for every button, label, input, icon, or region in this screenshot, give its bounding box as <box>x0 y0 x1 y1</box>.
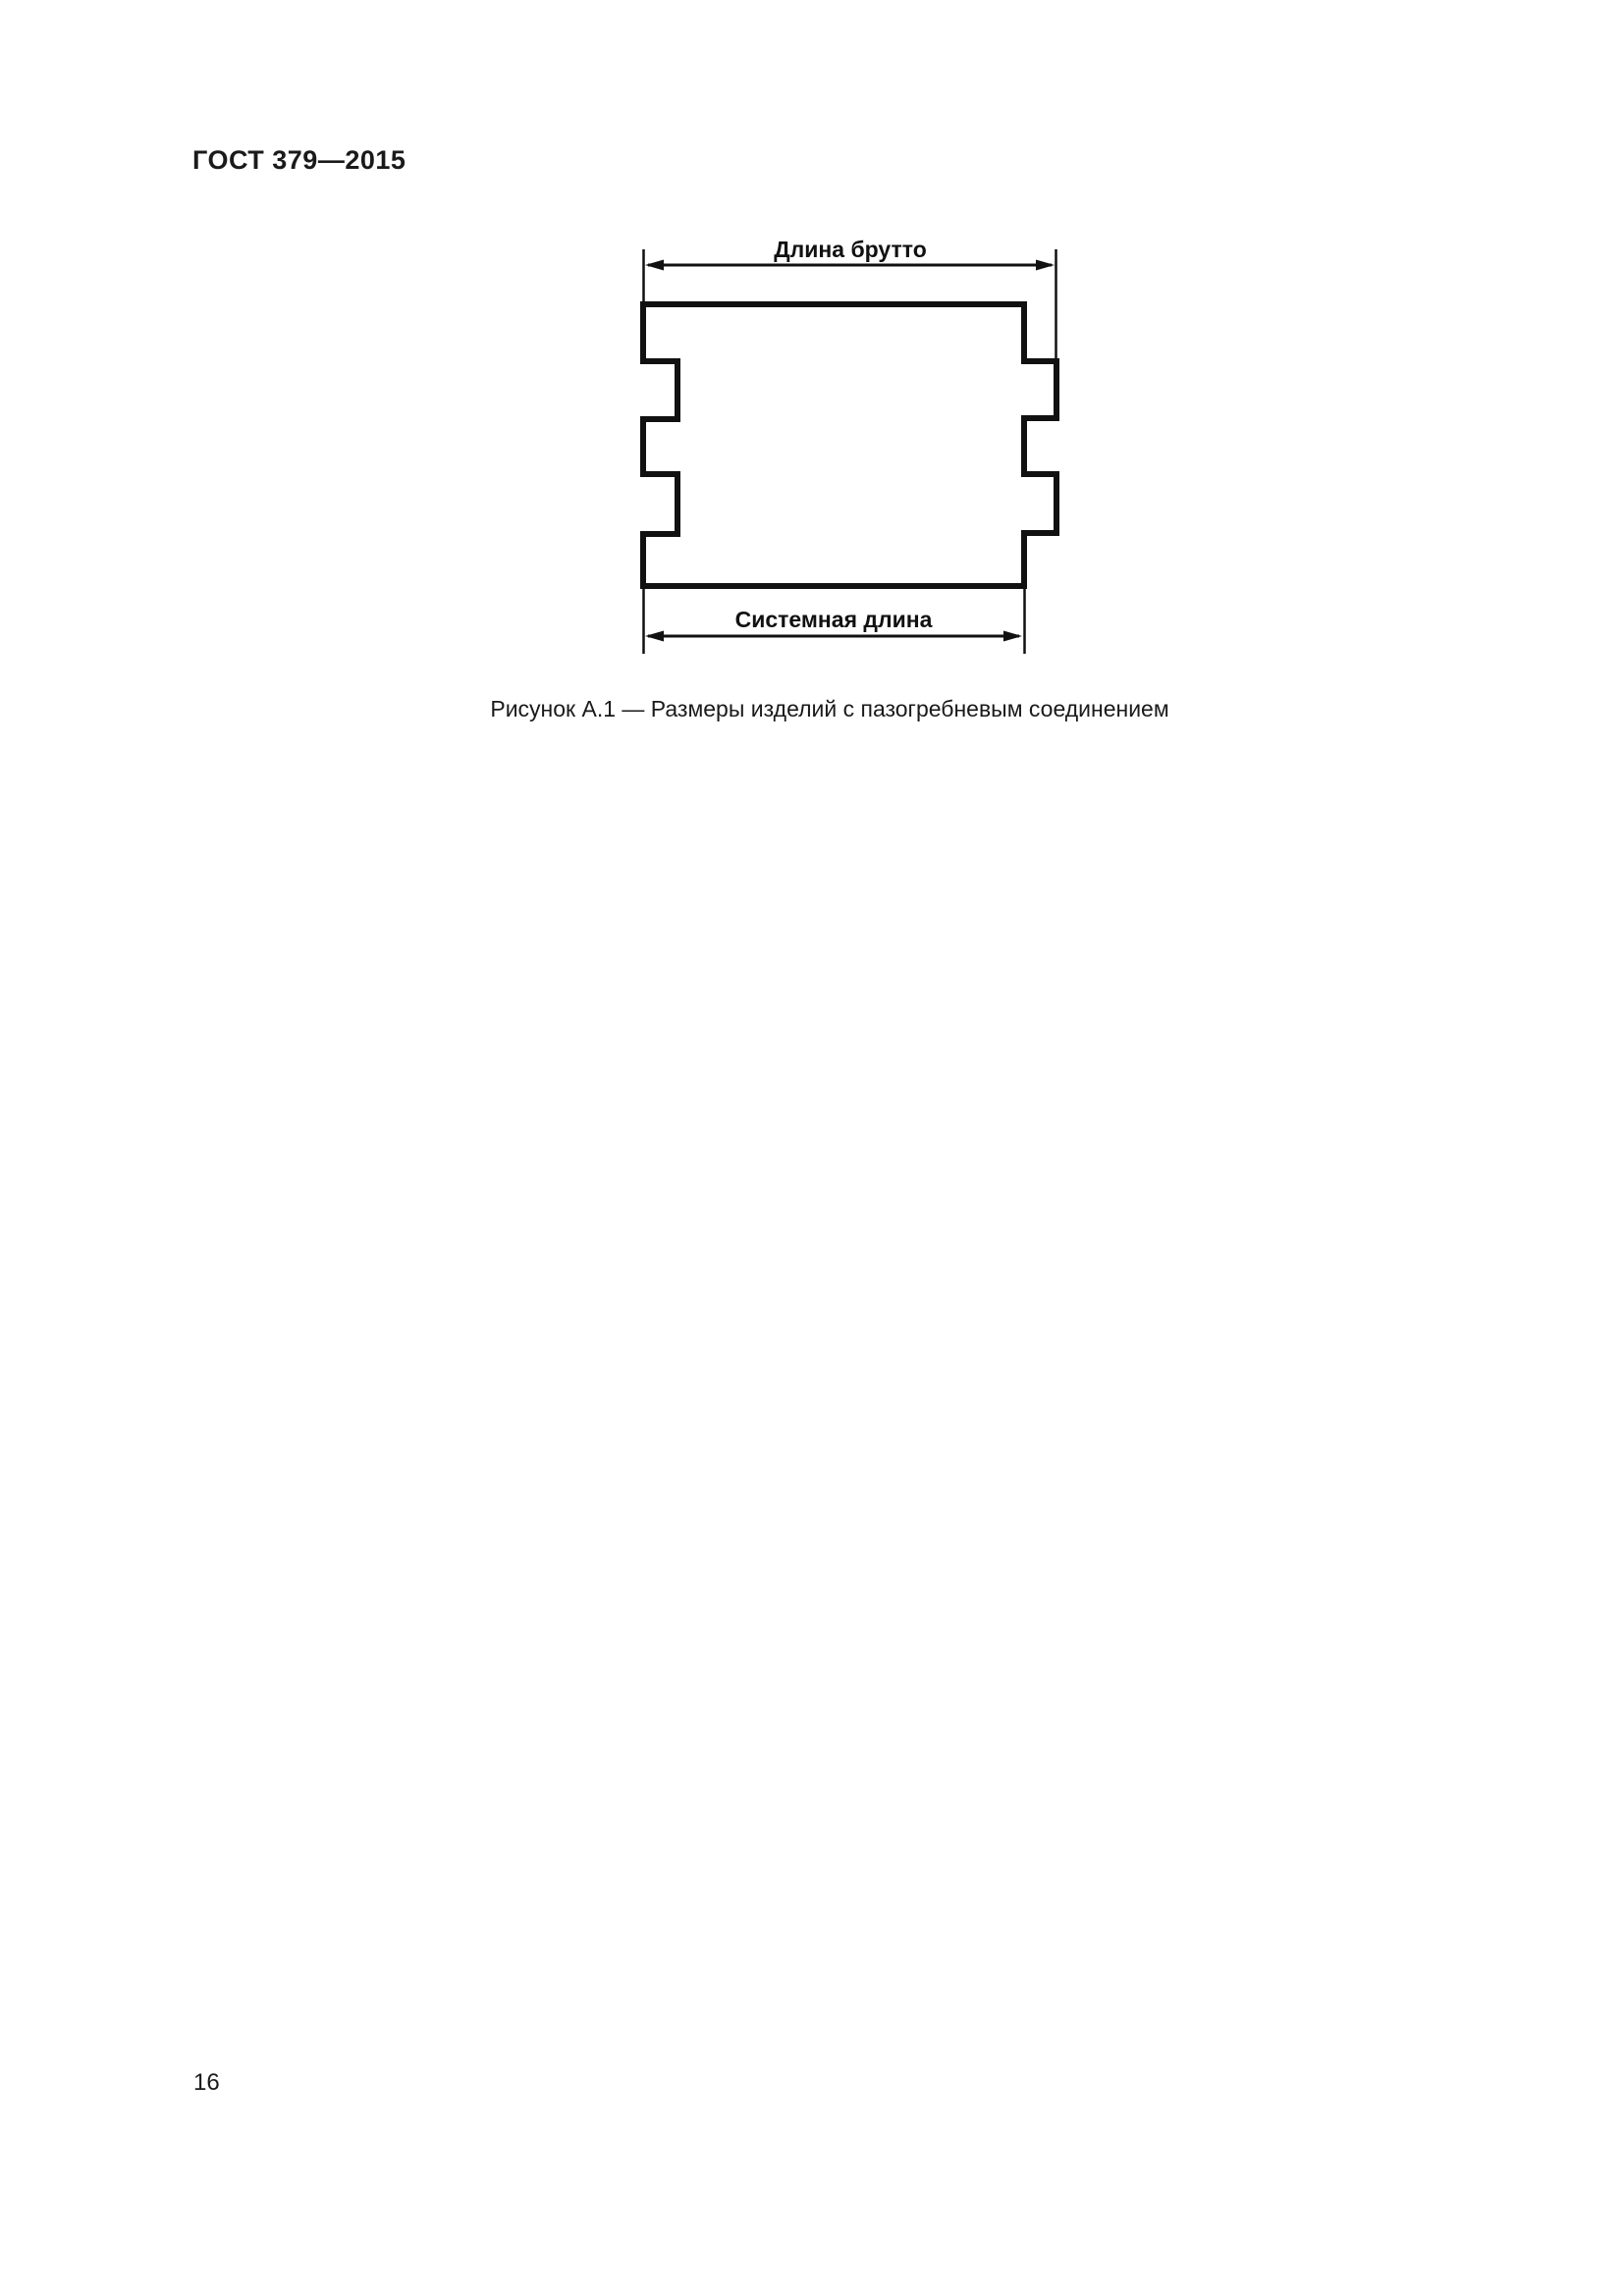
arrowhead-left-icon <box>645 260 664 271</box>
document-page: ГОСТ 379—2015 Длина брутто Системная дли… <box>0 0 1624 2296</box>
document-header: ГОСТ 379—2015 <box>192 145 406 176</box>
product-outline <box>643 304 1056 586</box>
arrowhead-right-icon <box>1003 631 1022 642</box>
arrowhead-right-icon <box>1036 260 1055 271</box>
figure-diagram: Длина брутто Системная длина <box>550 226 1139 677</box>
arrowhead-left-icon <box>645 631 664 642</box>
dimension-label-system-length: Системная длина <box>735 607 933 632</box>
figure-caption: Рисунок А.1 — Размеры изделий с пазогреб… <box>490 696 1168 722</box>
dimension-label-gross-length: Длина брутто <box>774 237 927 262</box>
page-number: 16 <box>193 2069 220 2097</box>
